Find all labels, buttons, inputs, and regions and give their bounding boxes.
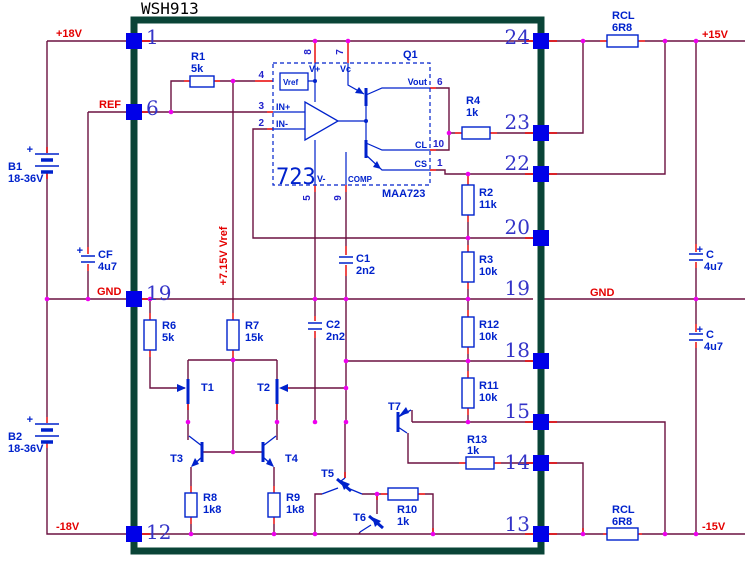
schematic-page: WSH913 Vref V+ Vc V- COMP IN+ IN- Vout C… (0, 0, 747, 567)
pin-label-18: 18 (505, 338, 530, 362)
b1-value: 18-36V (8, 173, 44, 185)
ic-723-big-label: 723 (276, 165, 316, 190)
t4-name: T4 (285, 453, 299, 465)
c-top-value: 4u7 (704, 261, 723, 273)
ic-cs-label: CS (414, 159, 427, 169)
pin-label-23: 23 (505, 110, 530, 134)
ic-vplus-label: V+ (309, 64, 320, 74)
label-plus18v: +18V (56, 28, 83, 40)
r6-value: 5k (162, 332, 175, 344)
opamp-triangle-icon (305, 102, 338, 140)
resistor-rcl-top (607, 35, 638, 47)
resistor-r11 (462, 378, 474, 408)
transistor-arrow-icon (266, 458, 274, 467)
b1-plus: + (27, 144, 33, 156)
schematic-canvas: WSH913 Vref V+ Vc V- COMP IN+ IN- Vout C… (0, 0, 747, 567)
battery-b1 (35, 154, 59, 172)
component-labels: R1 5k R4 1k RCL 6R8 RCL 6R8 R2 11k R3 10… (8, 10, 723, 528)
ic-vc-label: Vc (340, 64, 351, 74)
pad-pin24 (533, 33, 549, 49)
b2-plus: + (27, 414, 33, 426)
t2-name: T2 (257, 382, 270, 394)
ic-pin5: 5 (302, 195, 313, 201)
r4-name: R4 (466, 95, 481, 107)
r9-value: 1k8 (286, 504, 304, 516)
t6-name: T6 (353, 512, 366, 524)
ic-723: Vref V+ Vc V- COMP IN+ IN- Vout CL CS 72… (258, 49, 444, 201)
t3-name: T3 (170, 453, 183, 465)
resistor-r4 (462, 127, 490, 139)
pin-label-22: 22 (505, 151, 530, 175)
pin-label-6: 6 (146, 96, 159, 120)
label-gnd-right: GND (590, 287, 615, 299)
t7-name: T7 (388, 401, 401, 413)
r12-value: 10k (479, 331, 498, 343)
c-bottom-plus: + (697, 324, 703, 336)
cf-value: 4u7 (98, 261, 117, 273)
r11-value: 10k (479, 392, 498, 404)
r3-name: R3 (479, 254, 493, 266)
r1-name: R1 (191, 51, 205, 63)
pin-label-19-right: 19 (505, 276, 530, 300)
resistor-r10 (388, 488, 418, 500)
resistor-r12 (462, 317, 474, 347)
pad-pin20 (533, 230, 549, 246)
r1-value: 5k (191, 63, 204, 75)
resistor-rcl-bottom (607, 528, 638, 540)
ic-pin7: 7 (335, 49, 346, 55)
cf-plus: + (77, 245, 83, 257)
capacitor-cf (81, 256, 95, 262)
ic-pin3: 3 (258, 101, 264, 112)
ic-comp-label: COMP (348, 175, 373, 184)
r7-value: 15k (245, 332, 264, 344)
r10-value: 1k (397, 516, 410, 528)
ic-pin10: 10 (433, 139, 445, 150)
rcl-bottom-value: 6R8 (612, 516, 632, 528)
c1-value: 2n2 (356, 265, 375, 277)
label-minus15v: -15V (702, 521, 726, 533)
label-ref: REF (99, 99, 121, 111)
ic-inminus-label: IN- (276, 119, 288, 129)
r6-name: R6 (162, 320, 176, 332)
b2-value: 18-36V (8, 443, 44, 455)
r8-name: R8 (203, 492, 217, 504)
pin-label-14: 14 (505, 450, 530, 474)
ic-pin2: 2 (258, 118, 264, 129)
r10-name: R10 (397, 504, 417, 516)
rcl-top-value: 6R8 (612, 22, 632, 34)
ic-pin9: 9 (333, 195, 344, 201)
transistor-arrow-icon (191, 458, 199, 467)
pin-label-24: 24 (505, 25, 530, 49)
c-bottom-value: 4u7 (704, 341, 723, 353)
resistor-r9 (268, 493, 280, 517)
junction-icon (364, 119, 368, 123)
pad-pin22 (533, 166, 549, 182)
transistor-arrow-icon (355, 87, 364, 94)
t1-name: T1 (201, 382, 214, 394)
cf-name: CF (98, 249, 113, 261)
ic-vref-label: Vref (283, 78, 298, 87)
pin-label-15: 15 (505, 399, 530, 423)
pin-label-12: 12 (146, 520, 171, 544)
ic-designator: Q1 (403, 49, 418, 61)
r7-name: R7 (245, 320, 259, 332)
capacitor-c2 (308, 323, 322, 329)
ic-inplus-label: IN+ (276, 102, 290, 112)
c-top-plus: + (697, 244, 703, 256)
b1-name: B1 (8, 161, 22, 173)
r4-value: 1k (466, 107, 479, 119)
junction-icon (313, 79, 317, 83)
r8-value: 1k8 (203, 504, 221, 516)
r11-name: R11 (479, 380, 499, 392)
rcl-top-name: RCL (612, 10, 635, 22)
r13-value: 1k (467, 445, 480, 457)
pad-pin15 (533, 414, 549, 430)
ic-part-label: MAA723 (382, 188, 425, 200)
resistor-r2 (462, 185, 474, 215)
battery-b2 (35, 424, 59, 442)
pad-pin6 (126, 104, 142, 120)
label-vref-rail: +7.15V Vref (218, 226, 230, 285)
ic-pin8: 8 (303, 49, 314, 55)
c-bottom-name: C (706, 329, 714, 341)
pad-pin18 (533, 353, 549, 369)
resistor-r13 (466, 457, 494, 469)
pin-label-19-left: 19 (146, 281, 171, 305)
c1-name: C1 (356, 253, 370, 265)
ic-pin1: 1 (437, 158, 443, 169)
resistor-r8 (185, 493, 197, 517)
capacitor-c1 (339, 257, 353, 263)
pad-pin19-left (126, 291, 142, 307)
c2-value: 2n2 (326, 331, 345, 343)
ic-vminus-label: V- (317, 174, 326, 184)
r3-value: 10k (479, 266, 498, 278)
pad-pin23 (533, 125, 549, 141)
t5-name: T5 (321, 468, 334, 480)
c-top-name: C (706, 249, 714, 261)
ic-pin6: 6 (437, 77, 443, 88)
label-plus15v: +15V (702, 29, 729, 41)
ic-cl-label: CL (415, 140, 427, 150)
transistor-arrow-icon (279, 384, 288, 392)
pin-label-13: 13 (505, 512, 530, 536)
pad-pin1 (126, 33, 142, 49)
resistor-r6 (144, 320, 156, 350)
r12-name: R12 (479, 319, 499, 331)
resistor-r3 (462, 252, 474, 282)
transistor-arrow-icon (177, 384, 186, 392)
pin-label-20: 20 (505, 215, 530, 239)
resistors (144, 35, 638, 540)
pad-pin13 (533, 526, 549, 542)
resistor-r1 (190, 76, 214, 87)
pad-pin12 (126, 526, 142, 542)
r2-value: 11k (479, 199, 498, 211)
pad-pin14 (533, 455, 549, 471)
pin-label-1: 1 (146, 25, 159, 49)
ic-vout-label: Vout (408, 77, 427, 87)
b2-name: B2 (8, 431, 22, 443)
rcl-bottom-name: RCL (612, 504, 635, 516)
c2-name: C2 (326, 319, 340, 331)
ic-pin4: 4 (258, 70, 264, 81)
r9-name: R9 (286, 492, 300, 504)
label-minus18v: -18V (56, 521, 80, 533)
module-title: WSH913 (141, 0, 199, 18)
resistor-r7 (227, 320, 239, 350)
label-gnd-left: GND (97, 286, 122, 298)
r2-name: R2 (479, 187, 493, 199)
